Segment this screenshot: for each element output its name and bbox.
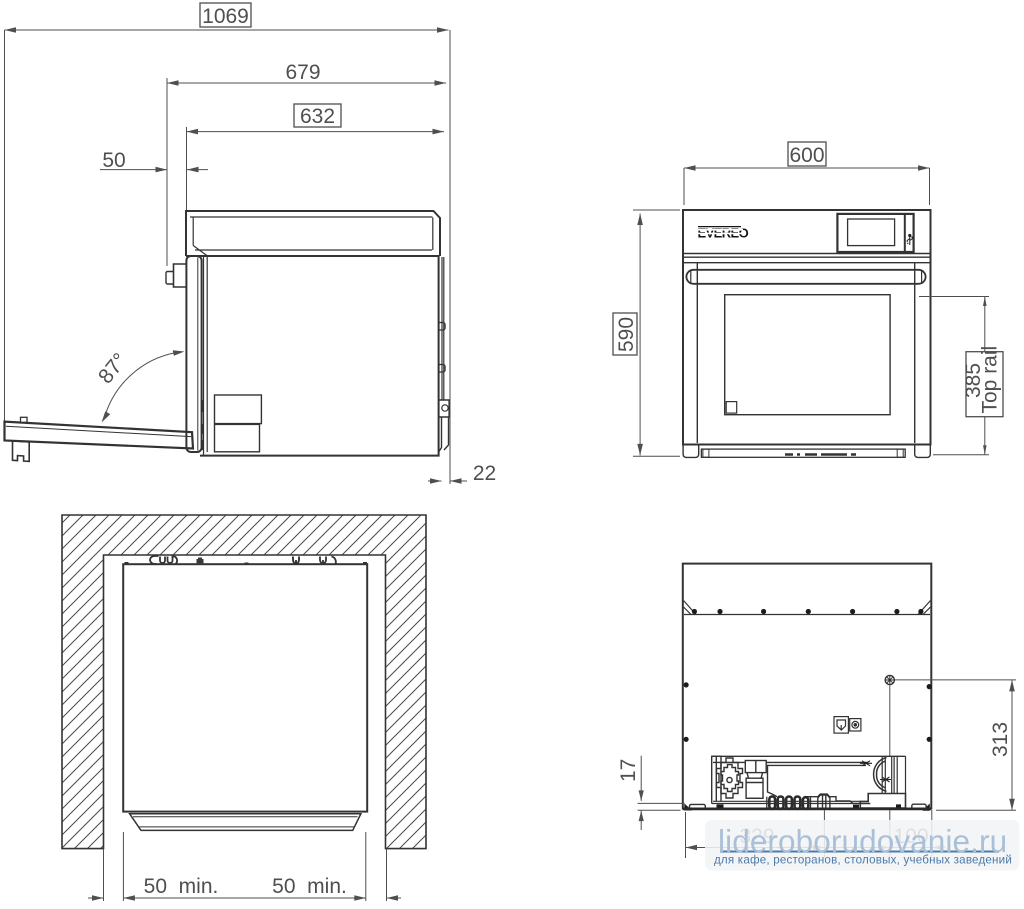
svg-text:17: 17: [617, 759, 640, 782]
svg-text:Top rail: Top rail: [979, 346, 1002, 414]
svg-text:313: 313: [989, 722, 1012, 757]
svg-text:22: 22: [473, 462, 496, 485]
svg-text:590: 590: [615, 317, 638, 352]
svg-text:679: 679: [285, 61, 320, 84]
svg-text:632: 632: [300, 105, 335, 128]
svg-text:для кафе, ресторанов, столовых: для кафе, ресторанов, столовых, учебных …: [714, 854, 1012, 867]
svg-text:600: 600: [789, 144, 824, 167]
svg-text:1069: 1069: [202, 5, 249, 28]
svg-text:50: 50: [102, 149, 125, 172]
svg-text:50 min.: 50 min.: [144, 875, 219, 898]
svg-text:50 min.: 50 min.: [272, 875, 347, 898]
